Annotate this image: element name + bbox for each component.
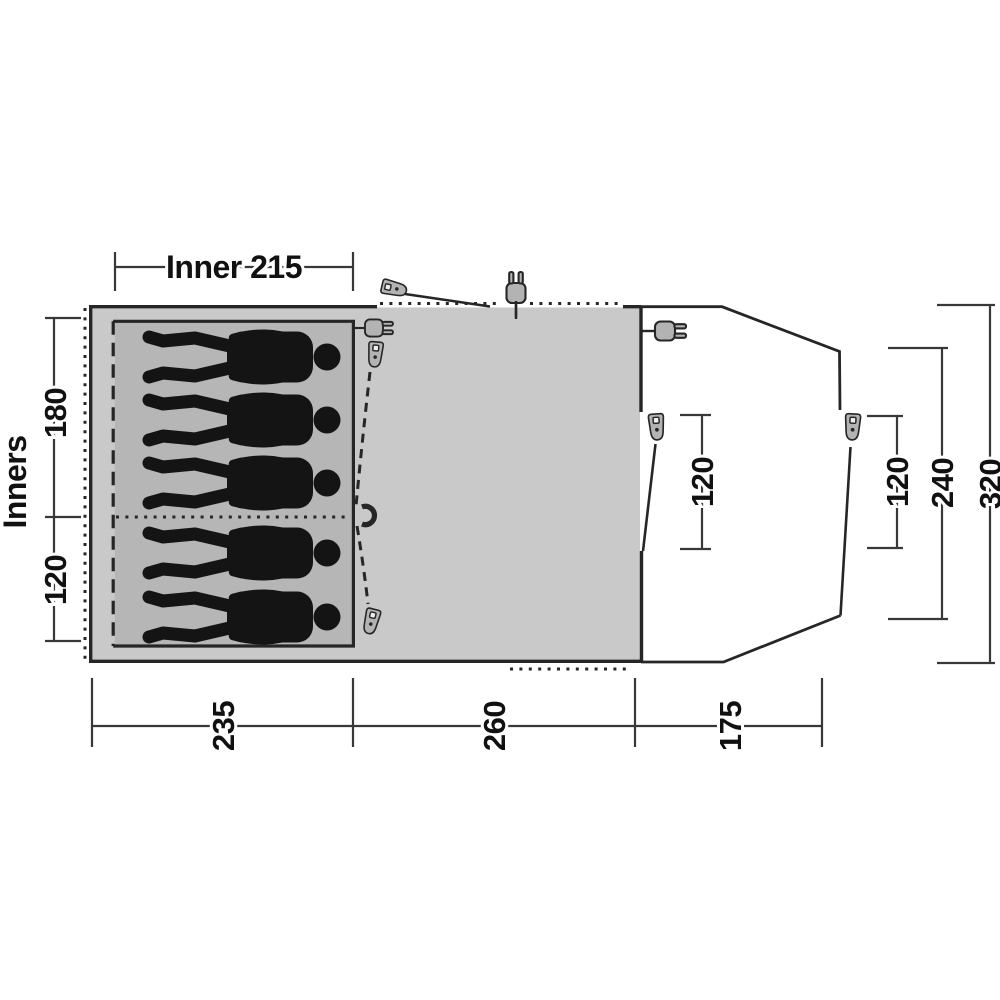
bottom-dim-235: 235 [206, 701, 241, 751]
zipper-puller-icon [844, 414, 860, 441]
bottom-dim-260: 260 [477, 701, 512, 751]
tent-floorplan-page: Inner 215 Inners 180 120 235 260 175 120… [0, 0, 1000, 1000]
left-dim-120: 120 [38, 555, 73, 605]
zipper-puller-icon [380, 279, 408, 299]
right-dim-240: 240 [925, 458, 960, 508]
left-dim-180: 180 [38, 388, 73, 438]
right-dim-120: 120 [880, 457, 915, 507]
bottom-dim-175: 175 [713, 701, 748, 751]
tent-floorplan-diagram: Inner 215 Inners 180 120 235 260 175 120… [0, 0, 1000, 1000]
power-plug-icon [641, 322, 686, 341]
porch-dim-120: 120 [685, 457, 720, 507]
inner-width-label: Inner 215 [166, 249, 302, 285]
right-dim-320: 320 [973, 459, 1000, 509]
zipper-puller-icon [648, 413, 665, 440]
side-door-line [643, 444, 656, 551]
inners-axis-label: Inners [0, 435, 33, 528]
porch-outline [641, 307, 851, 662]
